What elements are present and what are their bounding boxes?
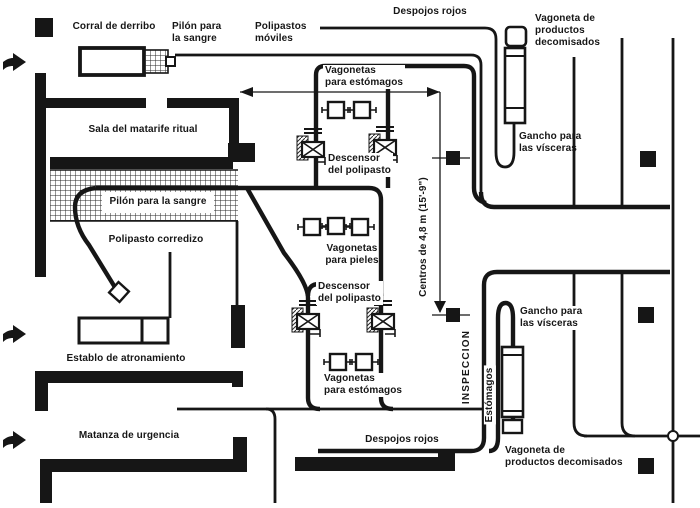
column-marker <box>640 151 656 167</box>
label-despojos-rojos-top: Despojos rojos <box>393 6 467 18</box>
knocking-pen <box>80 48 175 75</box>
cart-icon <box>502 347 523 433</box>
floor-plan: Corral de derribo Pilón para la sangre P… <box>0 0 700 508</box>
trolley-icon <box>322 102 350 118</box>
trolley-icon <box>350 354 378 370</box>
label-despojos-rojos-bottom: Despojos rojos <box>365 434 439 446</box>
label-descensor-top: Descensor del polipasto <box>326 153 393 177</box>
carts <box>502 27 526 433</box>
label-estomagos: Estómagos <box>484 366 496 425</box>
label-sala-matarife: Sala del matarife ritual <box>88 124 197 136</box>
label-polipasto-corredizo: Polipasto corredizo <box>109 234 204 246</box>
entry-arrow-icon <box>3 431 26 449</box>
label-corral: Corral de derribo <box>73 21 156 33</box>
label-vagoneta-top: Vagoneta de productos decomisados <box>535 13 600 50</box>
label-vagoneta-bottom: Vagoneta de productos decomisados <box>505 445 623 469</box>
label-vagonetas-estomagos-bottom: Vagonetas para estómagos <box>322 373 404 397</box>
entry-arrow-icon <box>3 325 26 343</box>
trolley-icon <box>348 102 376 118</box>
label-establo: Establo de atronamiento <box>67 353 186 365</box>
entry-arrow-icon <box>3 53 26 71</box>
trolley-icon <box>324 354 352 370</box>
rail-end-square <box>166 57 175 66</box>
label-vagonetas-pieles: Vagonetas para pieles <box>325 243 378 267</box>
label-centros: Centros de 4,8 m (15'-9") <box>418 177 430 297</box>
label-descensor-bottom: Descensor del polipasto <box>316 281 383 305</box>
blood-sink-symbol <box>144 50 168 73</box>
junction-circle <box>668 431 678 441</box>
stunning-pen <box>79 318 168 343</box>
label-gancho-top: Gancho para las vísceras <box>519 131 581 155</box>
hoist-descender-icon <box>297 129 325 165</box>
cart-icon <box>505 27 526 123</box>
column-marker <box>446 308 460 322</box>
label-matanza: Matanza de urgencia <box>79 430 179 442</box>
column-marker <box>638 458 654 474</box>
column-marker <box>638 307 654 323</box>
trolley-icon <box>346 219 374 235</box>
wall-block <box>35 18 53 37</box>
label-vagonetas-estomagos-top: Vagonetas para estómagos <box>323 65 405 89</box>
column-marker <box>446 151 460 165</box>
entry-arrows <box>3 53 26 449</box>
label-pilon-top: Pilón para la sangre <box>172 21 221 45</box>
label-gancho-bottom: Gancho para las vísceras <box>518 306 584 330</box>
label-inspeccion: INSPECCION <box>461 330 473 404</box>
label-polipastos-moviles: Polipastos móviles <box>255 21 307 45</box>
label-pilon-band: Pilón para la sangre <box>109 196 206 208</box>
